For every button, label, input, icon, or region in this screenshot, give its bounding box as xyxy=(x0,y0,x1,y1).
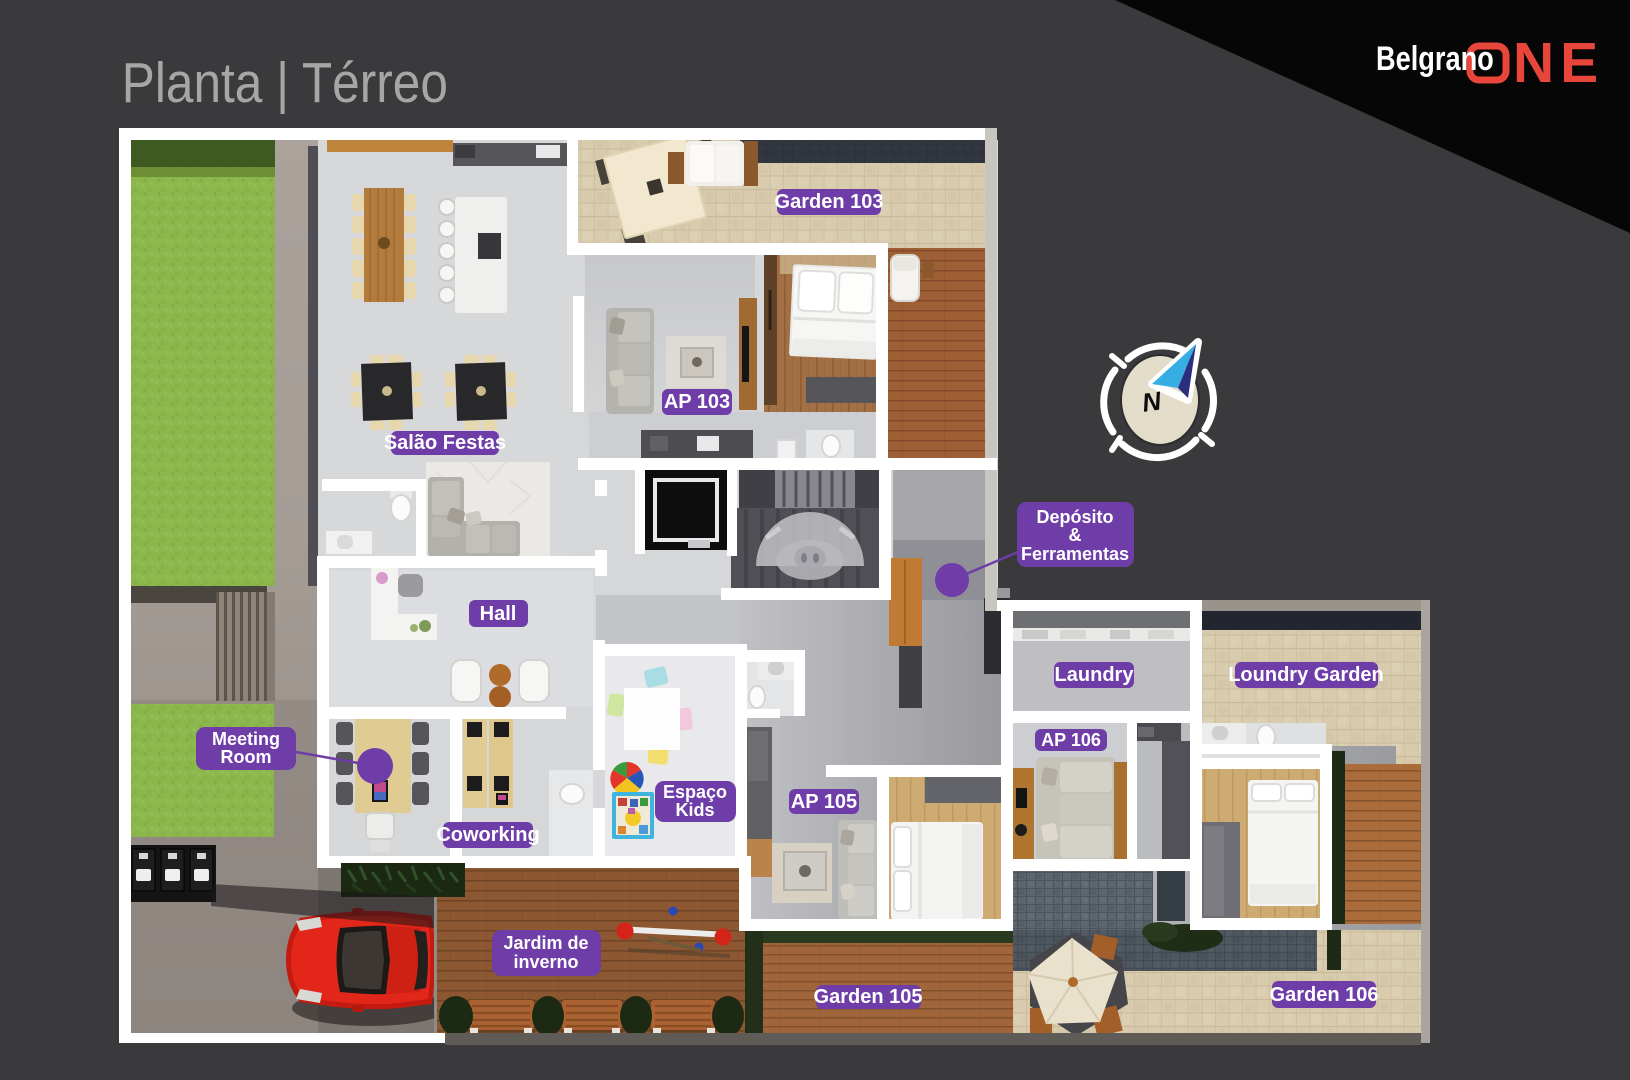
svg-text:Coworking: Coworking xyxy=(436,824,539,846)
svg-text:Ferramentas: Ferramentas xyxy=(1021,544,1129,564)
svg-text:Planta | Térreo: Planta | Térreo xyxy=(122,52,448,115)
svg-text:AP 105: AP 105 xyxy=(791,791,857,813)
svg-text:Jardim de: Jardim de xyxy=(503,933,588,953)
svg-text:Laundry: Laundry xyxy=(1055,664,1135,686)
svg-text:Depósito: Depósito xyxy=(1036,507,1113,527)
svg-text:Belgrano: Belgrano xyxy=(1376,39,1494,78)
svg-text:Kids: Kids xyxy=(675,800,714,820)
svg-text:AP 103: AP 103 xyxy=(664,391,730,413)
svg-text:AP 106: AP 106 xyxy=(1041,730,1101,750)
svg-text:Loundry Garden: Loundry Garden xyxy=(1228,664,1384,686)
svg-text:Meeting: Meeting xyxy=(212,729,280,749)
svg-text:Garden 106: Garden 106 xyxy=(1270,984,1379,1006)
svg-text:&: & xyxy=(1069,525,1082,545)
svg-text:Salão Festas: Salão Festas xyxy=(384,432,506,454)
svg-text:NE: NE xyxy=(1513,31,1604,95)
svg-text:Espaço: Espaço xyxy=(663,782,727,802)
svg-text:Hall: Hall xyxy=(480,603,517,625)
svg-text:Garden 105: Garden 105 xyxy=(814,986,923,1008)
svg-text:Garden 103: Garden 103 xyxy=(775,191,884,213)
svg-text:inverno: inverno xyxy=(513,952,578,972)
svg-text:Room: Room xyxy=(221,747,272,767)
